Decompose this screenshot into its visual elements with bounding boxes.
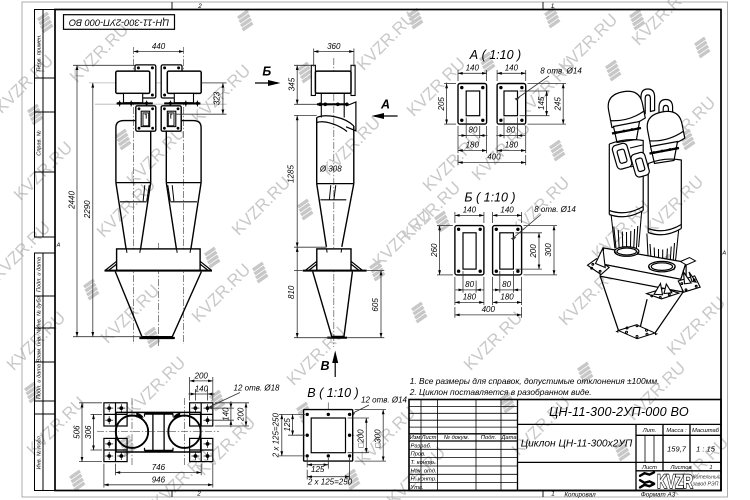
svg-text:Разраб.: Разраб. [411,443,432,449]
svg-text:Ø 308: Ø 308 [319,164,342,173]
svg-text:Нач. отд.: Нач. отд. [411,468,437,474]
svg-text:Инв. № дубл.: Инв. № дубл. [37,295,43,329]
svg-text:ЦН-11-300-2УП-000 ВО: ЦН-11-300-2УП-000 ВО [549,405,689,419]
svg-text:12 отв. Ø14: 12 отв. Ø14 [361,396,408,405]
svg-text:Справ. №: Справ. № [37,130,43,155]
svg-text:KVZR.RU: KVZR.RU [0,218,54,284]
svg-text:Перв. примен.: Перв. примен. [37,34,43,71]
svg-text:8 отв. Ø14: 8 отв. Ø14 [534,205,576,214]
svg-text:159,7: 159,7 [667,445,687,454]
svg-text:323: 323 [213,91,222,105]
svg-text:KVZR.RU: KVZR.RU [228,173,294,239]
svg-text:А ( 1:10 ): А ( 1:10 ) [469,48,521,62]
svg-text:KVZR.RU: KVZR.RU [123,353,189,419]
svg-text:345: 345 [287,77,296,91]
svg-text:Взам. инв. №: Взам. инв. № [37,328,43,363]
svg-text:Котельный: Котельный [693,474,721,481]
svg-text:завод РЭП: завод РЭП [692,482,719,488]
svg-text:140: 140 [466,63,480,72]
svg-text:1. Все размеры для справок, до: 1. Все размеры для справок, допустимые о… [410,376,660,386]
svg-text:Лист: Лист [641,465,657,471]
svg-text:80: 80 [506,126,515,135]
svg-text:А: А [56,243,61,249]
svg-text:Подп.: Подп. [481,435,496,441]
svg-text:360: 360 [327,42,341,51]
svg-text:2290: 2290 [83,200,92,219]
svg-text:306: 306 [84,425,93,439]
svg-text:140: 140 [195,385,209,394]
svg-text:Копировал: Копировал [564,492,596,499]
svg-text:80: 80 [502,280,511,289]
svg-text:440: 440 [152,42,166,51]
svg-text:605: 605 [371,298,380,312]
svg-text:KVZR.RU: KVZR.RU [0,51,57,117]
svg-text:KVZR.RU: KVZR.RU [460,308,526,374]
svg-text:KVZR.RU: KVZR.RU [663,293,729,359]
svg-text:2: 2 [197,3,202,10]
svg-text:KVZR: KVZR [657,471,693,493]
svg-text:№ докум.: № докум. [444,435,470,441]
svg-text:Дата: Дата [500,435,517,441]
svg-text:80: 80 [469,126,478,135]
svg-text:Изм: Изм [410,435,421,441]
svg-text:1: 1 [709,465,712,471]
svg-text:Т. контр.: Т. контр. [411,460,436,466]
svg-text:200: 200 [236,407,245,422]
svg-text:145: 145 [537,96,546,110]
svg-text:810: 810 [287,285,296,299]
svg-text:ЦН-11-300-2УП-000 ВО: ЦН-11-300-2УП-000 ВО [69,18,169,28]
svg-text:245: 245 [553,97,562,112]
svg-text:180: 180 [466,141,480,150]
svg-text:Н. контр.: Н. контр. [411,477,437,483]
svg-text:KVZR.RU: KVZR.RU [93,175,159,241]
svg-text:746: 746 [152,463,166,472]
svg-text:400: 400 [482,305,496,314]
svg-text:KVZR.RU: KVZR.RU [353,8,419,74]
svg-text:KVZR.RU: KVZR.RU [468,118,534,184]
svg-text:2: 2 [196,491,201,498]
svg-text:506: 506 [72,425,81,439]
svg-text:Пров.: Пров. [411,452,426,458]
svg-text:Утв.: Утв. [410,485,424,491]
svg-text:140: 140 [463,205,477,214]
svg-text:Подп. и дата: Подп. и дата [37,257,43,292]
svg-text:125: 125 [311,465,325,474]
svg-text:2. Циклон поставляется в разоб: 2. Циклон поставляется в разобранном вид… [409,387,592,397]
svg-text:140: 140 [505,63,519,72]
svg-text:400: 400 [487,153,501,162]
svg-text:12 отв. Ø18: 12 отв. Ø18 [234,384,281,393]
svg-text:2 х 125=250: 2 х 125=250 [272,413,281,459]
svg-text:Циклон ЦН-11-300х2УП: Циклон ЦН-11-300х2УП [521,439,633,450]
svg-text:2 х 125=250: 2 х 125=250 [307,478,353,487]
svg-text:А: А [380,98,390,112]
svg-text:Формат А3: Формат А3 [641,492,676,499]
svg-text:180: 180 [500,292,514,301]
svg-text:80: 80 [465,280,474,289]
svg-text:Б: Б [262,65,271,79]
svg-text:Масштаб: Масштаб [692,428,720,434]
svg-text:180: 180 [505,141,519,150]
svg-text:Инв. № подл.: Инв. № подл. [37,435,43,470]
svg-text:205: 205 [437,97,446,112]
svg-text:140: 140 [221,407,230,421]
svg-text:KVZR.RU: KVZR.RU [283,323,349,389]
svg-text:200: 200 [194,371,209,380]
svg-text:Масса :: Масса : [666,428,687,434]
svg-text:8 отв. Ø14: 8 отв. Ø14 [540,67,582,76]
svg-text:Лит.: Лит. [642,428,657,434]
svg-text:1: 1 [551,491,555,498]
svg-text:□200: □200 [357,429,366,448]
svg-text:1: 1 [551,3,555,10]
svg-text:Лист: Лист [421,435,437,441]
svg-text:1 : 15: 1 : 15 [696,445,716,454]
svg-text:946: 946 [152,475,166,484]
svg-text:В: В [320,359,329,373]
svg-text:200: 200 [529,244,538,259]
svg-text:180: 180 [463,292,477,301]
svg-text:А: А [721,251,726,257]
svg-text:140: 140 [500,205,514,214]
svg-text:1285: 1285 [287,165,296,183]
svg-text:2440: 2440 [67,191,76,210]
svg-text:125: 125 [283,418,292,432]
svg-text:Подп. и дата: Подп. и дата [37,364,43,399]
svg-text:KVZR.RU: KVZR.RU [123,123,189,189]
svg-text:В ( 1:10 ): В ( 1:10 ) [307,386,358,400]
svg-text:260: 260 [430,243,439,258]
svg-text:□300: □300 [373,429,382,448]
svg-text:Б ( 1:10 ): Б ( 1:10 ) [464,191,515,205]
svg-text:300: 300 [544,243,553,257]
